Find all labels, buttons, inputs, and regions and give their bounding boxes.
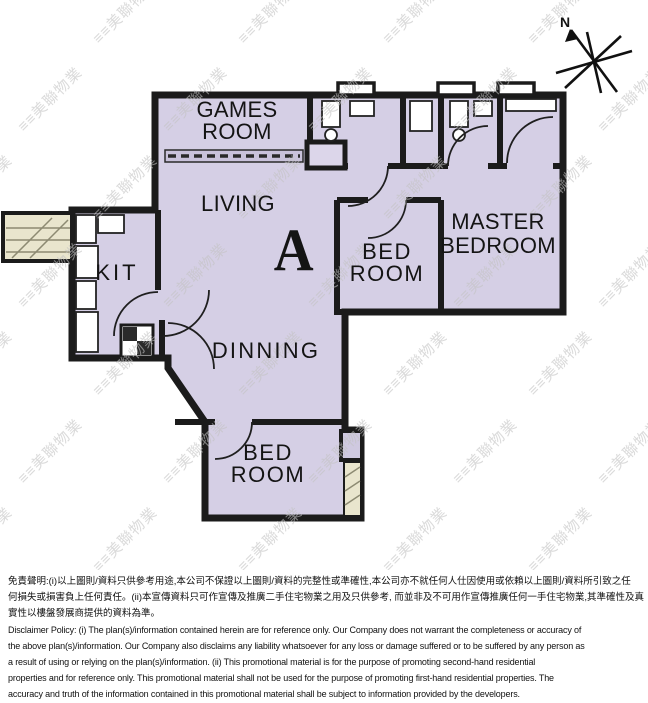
lower-window-and-shaft [341, 431, 362, 516]
disclaimer-en-line: accuracy and truth of the information co… [8, 686, 642, 702]
disclaimer-en-line: a result of using or relying on the plan… [8, 654, 642, 670]
floor-plan-page: ≡≡美聯物業≡≡美聯物業≡≡美聯物業≡≡美聯物業≡≡美聯物業≡≡美聯物業≡≡美聯… [0, 0, 648, 703]
disclaimer-en-line: Disclaimer Policy: (i) The plan(s)/infor… [8, 622, 642, 638]
disclaimer-zh-line: 何損失或損害負上任何責任。(ii)本宣傳資料只可作宣傳及推廣二手住宅物業之用及只… [8, 590, 642, 606]
disclaimer-zh-line: 實性以樓盤發展商提供的資料為準。 [8, 606, 642, 622]
games-room-window-sill [165, 150, 303, 162]
disclaimer-en-line: the above plan(s)/information. Our Compa… [8, 638, 642, 654]
compass-icon [556, 29, 632, 93]
kitchen-stove [121, 325, 153, 357]
disclaimer: 免責聲明:(i)以上圖則/資料只供參考用途,本公司不保證以上圖則/資料的完整性或… [8, 574, 642, 702]
disclaimer-zh-line: 免責聲明:(i)以上圖則/資料只供參考用途,本公司不保證以上圖則/資料的完整性或… [8, 574, 642, 590]
left-duct [3, 213, 72, 261]
disclaimer-en-line: properties and for reference only. This … [8, 670, 642, 686]
floor-plan-drawing [0, 0, 648, 570]
junction-closet [307, 142, 345, 168]
